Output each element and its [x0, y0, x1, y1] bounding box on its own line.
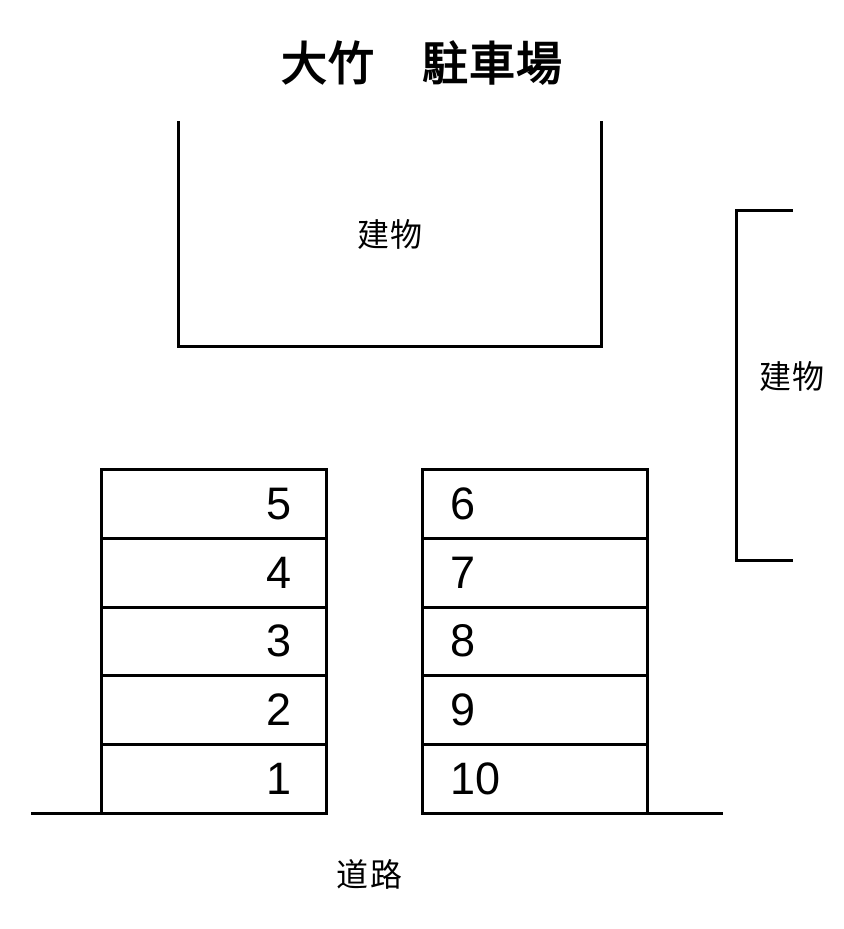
parking-space-number: 4: [266, 547, 291, 599]
parking-space-1: 1: [103, 746, 325, 812]
road-label: 道路: [336, 850, 404, 896]
parking-space-5: 5: [103, 471, 325, 540]
building-top-label: 建物: [357, 210, 423, 256]
parking-space-number: 10: [450, 753, 500, 805]
parking-space-2: 2: [103, 677, 325, 746]
parking-space-number: 6: [450, 478, 475, 530]
building-right: 建物: [735, 209, 793, 562]
parking-space-7: 7: [424, 540, 646, 609]
parking-space-number: 5: [266, 478, 291, 530]
building-top: 建物: [177, 121, 603, 348]
parking-space-3: 3: [103, 609, 325, 678]
parking-space-9: 9: [424, 677, 646, 746]
parking-space-number: 1: [266, 753, 291, 805]
parking-space-4: 4: [103, 540, 325, 609]
road-line-left: [31, 812, 100, 815]
parking-space-number: 9: [450, 684, 475, 736]
parking-space-number: 8: [450, 615, 475, 667]
parking-space-number: 3: [266, 615, 291, 667]
parking-space-8: 8: [424, 609, 646, 678]
parking-space-number: 7: [450, 547, 475, 599]
parking-space-number: 2: [266, 684, 291, 736]
parking-column-left: 5 4 3 2 1: [100, 468, 328, 815]
page-title: 大竹 駐車場: [0, 28, 844, 94]
building-right-label: 建物: [759, 352, 825, 398]
road-line-right: [649, 812, 723, 815]
parking-space-6: 6: [424, 471, 646, 540]
parking-lot-diagram: 大竹 駐車場 建物 建物 5 4 3 2 1 6 7 8: [0, 0, 844, 929]
parking-space-10: 10: [424, 746, 646, 812]
parking-column-right: 6 7 8 9 10: [421, 468, 649, 815]
